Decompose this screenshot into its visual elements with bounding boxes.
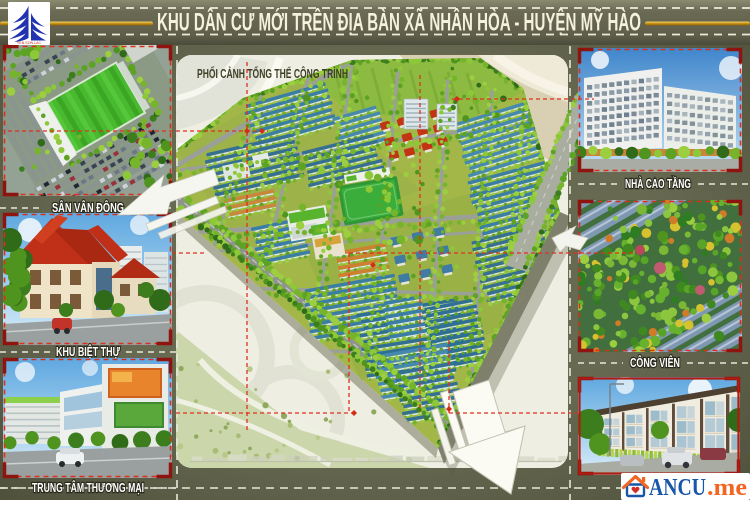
svg-text:SÂN VẬN ĐỘNG: SÂN VẬN ĐỘNG [52,200,124,215]
svg-text:TRUNG TÂM THƯƠNG MẠI: TRUNG TÂM THƯƠNG MẠI [32,480,144,495]
svg-text:NHÀ CAO TẦNG: NHÀ CAO TẦNG [625,176,691,191]
svg-text:KHU BIỆT THỰ: KHU BIỆT THỰ [56,344,120,359]
svg-text:YEN SON LAC: YEN SON LAC [17,41,42,45]
svg-text:ANCU: ANCU [649,475,706,500]
svg-text:.me: .me [707,475,747,500]
svg-text:CÔNG VIÊN: CÔNG VIÊN [630,355,680,370]
svg-text:PHỐI CẢNH TỔNG THỂ CÔNG TRÌNH: PHỐI CẢNH TỔNG THỂ CÔNG TRÌNH [197,66,348,81]
svg-text:KHU DÂN CƯ MỚI TRÊN ĐỊA BÀN XÃ: KHU DÂN CƯ MỚI TRÊN ĐỊA BÀN XÃ NHÂN HÒA … [157,7,641,37]
